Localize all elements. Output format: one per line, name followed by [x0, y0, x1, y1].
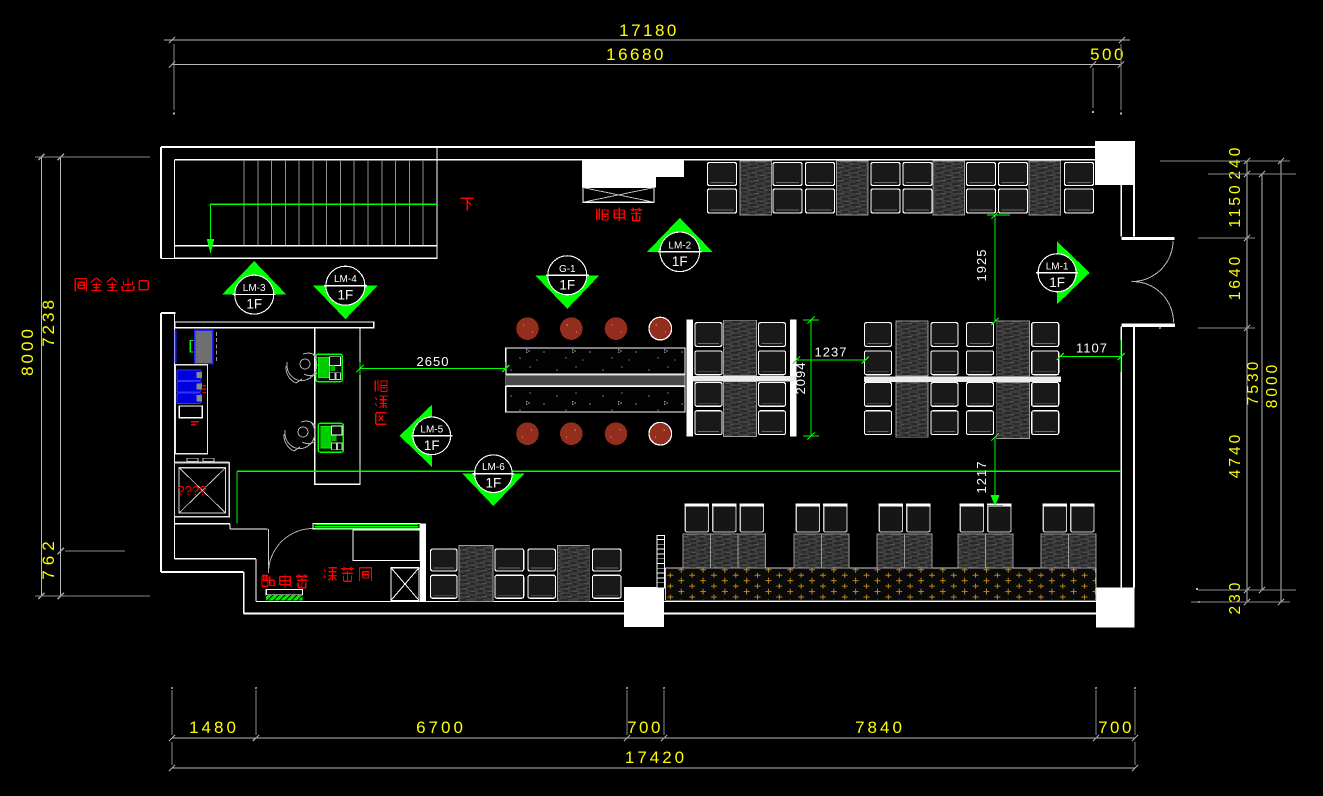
- svg-text:7840: 7840: [855, 718, 905, 737]
- svg-text:1F: 1F: [246, 297, 262, 312]
- svg-text:1F: 1F: [424, 438, 440, 453]
- svg-text:17420: 17420: [625, 748, 687, 767]
- svg-text:LM-5: LM-5: [420, 424, 443, 435]
- svg-text:LM-6: LM-6: [482, 462, 505, 473]
- svg-text:1107: 1107: [1076, 341, 1108, 356]
- svg-text:762: 762: [39, 536, 58, 579]
- svg-text:1F: 1F: [338, 288, 354, 303]
- svg-text:7238: 7238: [39, 297, 58, 347]
- svg-text:1237: 1237: [815, 345, 848, 360]
- svg-text:2094: 2094: [793, 362, 808, 395]
- svg-text:1F: 1F: [559, 277, 575, 292]
- svg-text:8000: 8000: [18, 326, 37, 376]
- svg-text:1F: 1F: [486, 476, 502, 491]
- svg-text:G-1: G-1: [559, 264, 576, 275]
- svg-text:700: 700: [627, 718, 663, 737]
- svg-text:????: ????: [178, 483, 207, 498]
- svg-text:1480: 1480: [189, 718, 239, 737]
- svg-text:1925: 1925: [974, 249, 989, 282]
- svg-text:LM-3: LM-3: [243, 283, 266, 294]
- svg-text:1150: 1150: [1227, 182, 1244, 227]
- svg-text:4740: 4740: [1227, 432, 1244, 478]
- svg-text:LM-1: LM-1: [1046, 261, 1069, 272]
- svg-text:1F: 1F: [1049, 275, 1065, 290]
- svg-text:1217: 1217: [974, 461, 989, 494]
- svg-text:7530: 7530: [1245, 359, 1262, 405]
- svg-text:1640: 1640: [1227, 254, 1244, 300]
- svg-text:LM-2: LM-2: [668, 240, 691, 251]
- svg-text:230: 230: [1227, 580, 1244, 615]
- svg-text:1F: 1F: [672, 254, 688, 269]
- svg-text:8000: 8000: [1264, 362, 1281, 408]
- svg-text:700: 700: [1098, 718, 1134, 737]
- svg-text:LM-4: LM-4: [334, 274, 357, 285]
- svg-text:500: 500: [1090, 45, 1126, 64]
- svg-text:17180: 17180: [619, 21, 679, 40]
- svg-text:6700: 6700: [416, 718, 466, 737]
- svg-text:2650: 2650: [417, 354, 450, 369]
- svg-text:16680: 16680: [606, 45, 666, 64]
